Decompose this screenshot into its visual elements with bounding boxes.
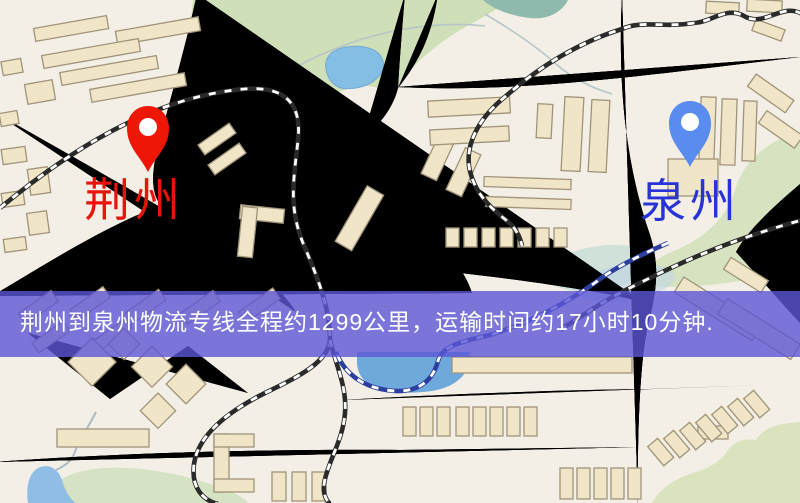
route-banner: 荆州到泉州物流专线全程约1299公里，运输时间约17小时10分钟. (0, 291, 800, 357)
origin-city-label: 荆州 (84, 174, 184, 226)
route-banner-text: 荆州到泉州物流专线全程约1299公里，运输时间约17小时10分钟. (20, 309, 714, 335)
destination-pin-hole (681, 113, 699, 131)
destination-city-label: 泉州 (640, 175, 740, 227)
map-canvas[interactable]: 荆州到泉州物流专线全程约1299公里，运输时间约17小时10分钟. 荆州 泉州 (0, 0, 800, 503)
origin-pin-hole (139, 118, 157, 136)
logistics-route-map: 荆州到泉州物流专线全程约1299公里，运输时间约17小时10分钟. 荆州 泉州 (0, 0, 800, 503)
